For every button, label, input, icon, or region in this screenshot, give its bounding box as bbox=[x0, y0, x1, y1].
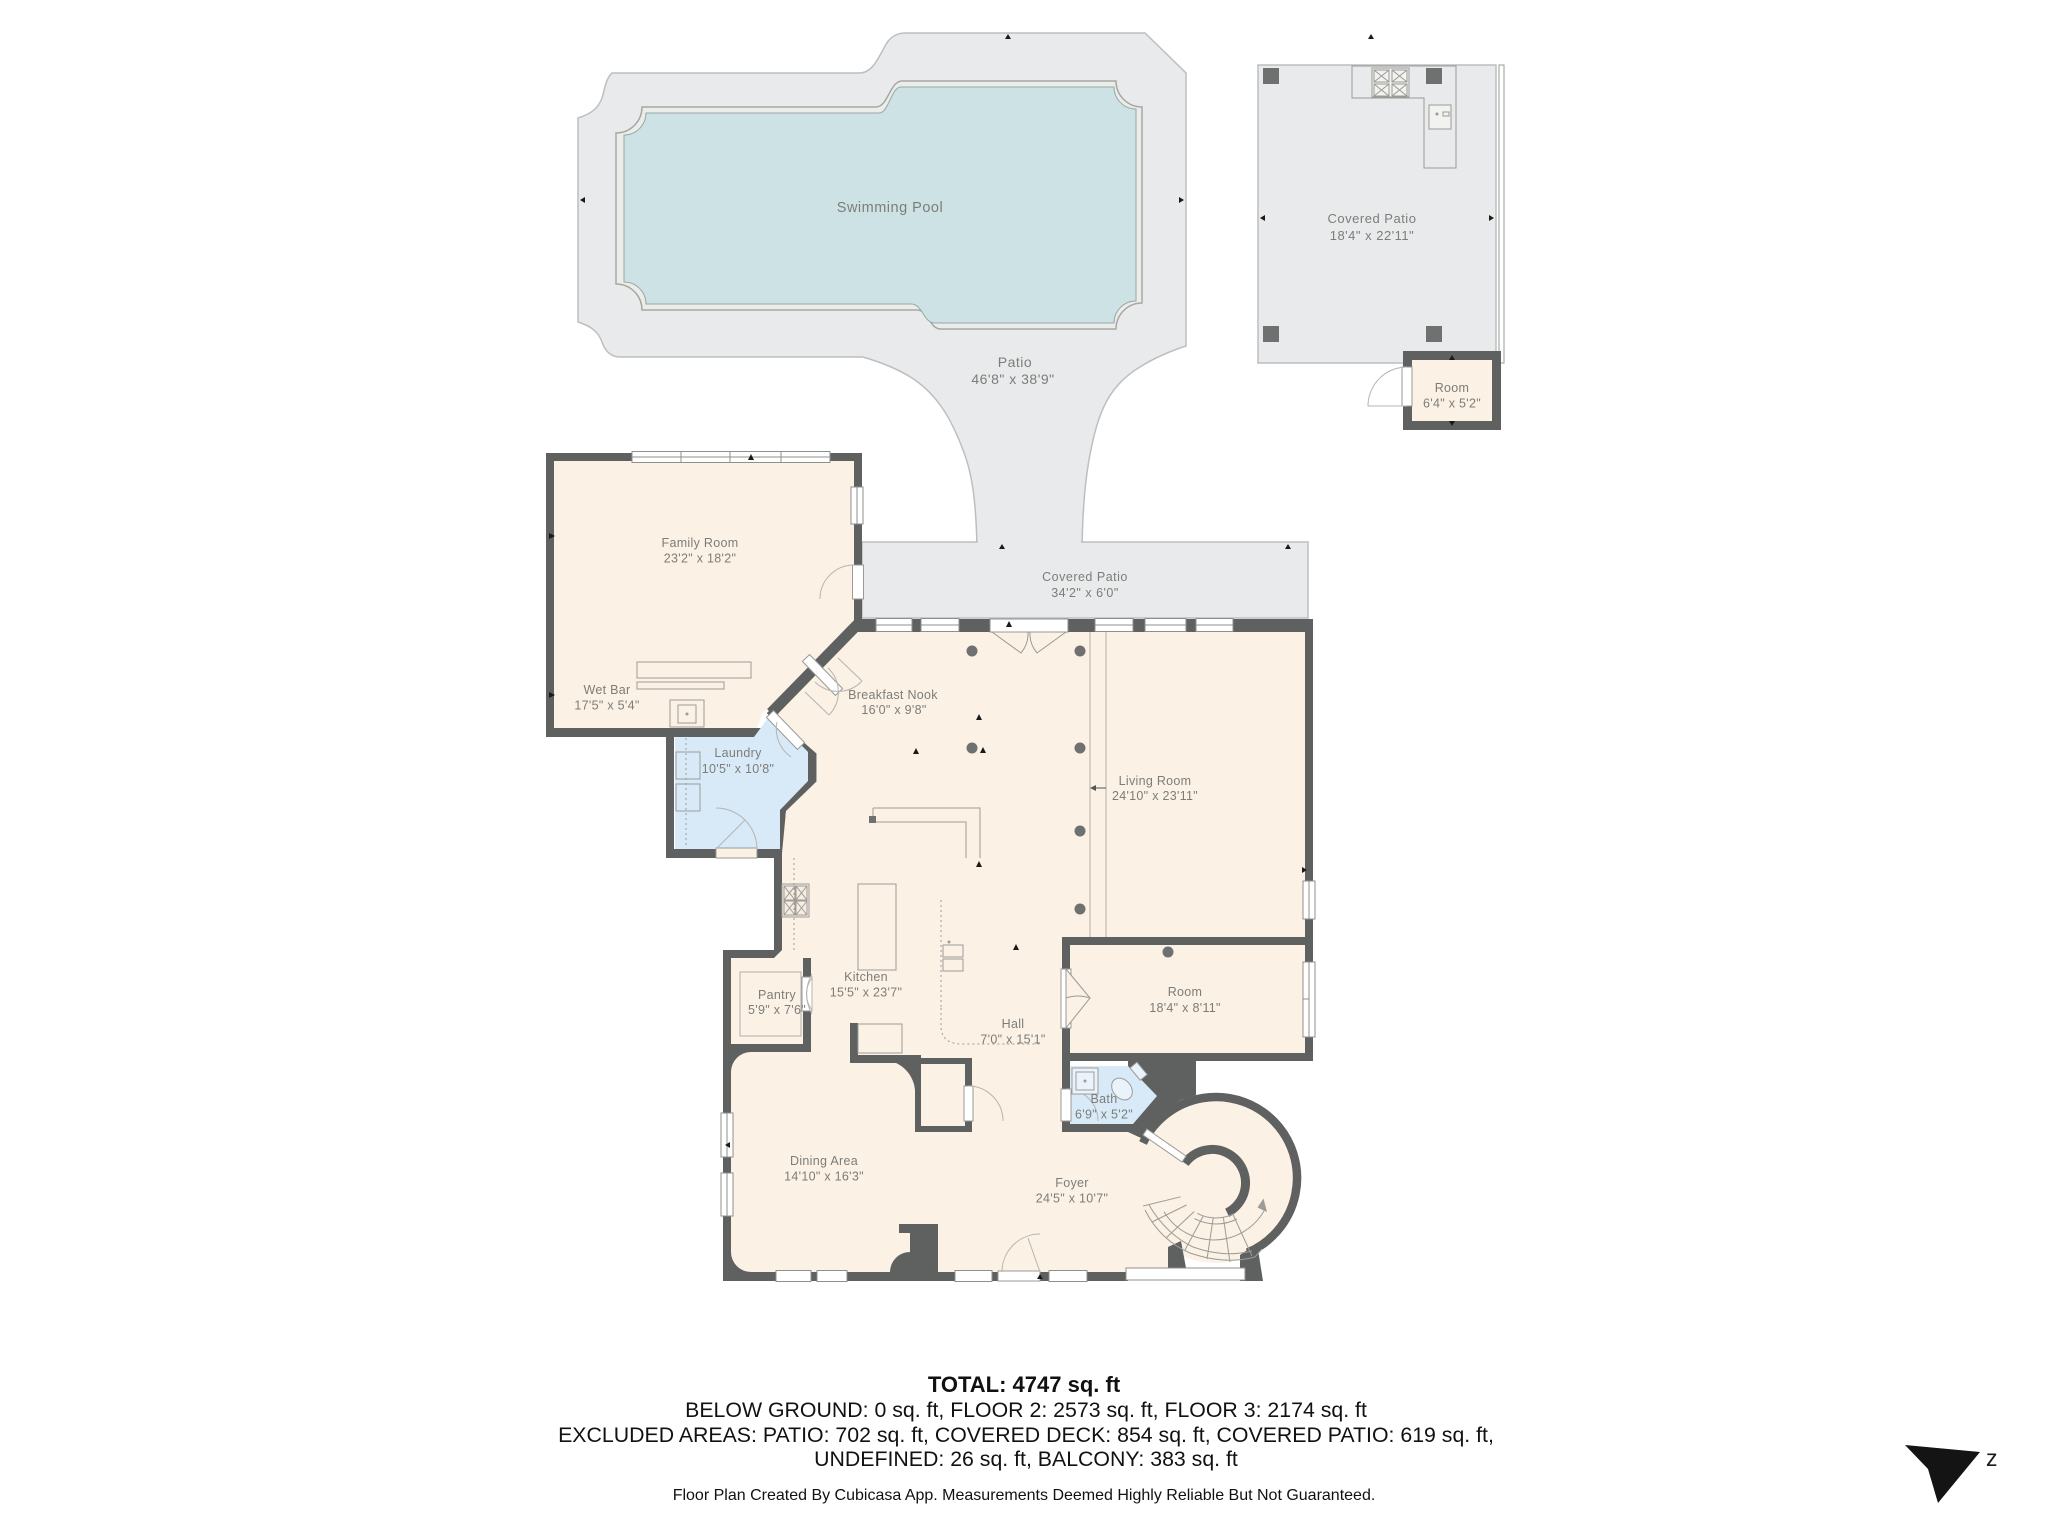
svg-text:16'0" x 9'8": 16'0" x 9'8" bbox=[861, 703, 926, 717]
svg-text:5'9" x 7'6": 5'9" x 7'6" bbox=[748, 1003, 806, 1017]
svg-text:17'5" x 5'4": 17'5" x 5'4" bbox=[574, 699, 639, 713]
svg-text:Foyer: Foyer bbox=[1055, 1176, 1088, 1190]
svg-text:Pantry: Pantry bbox=[758, 988, 796, 1002]
svg-text:Covered Patio: Covered Patio bbox=[1328, 211, 1417, 226]
svg-text:6'9" x 5'2": 6'9" x 5'2" bbox=[1075, 1108, 1133, 1122]
svg-text:Bath: Bath bbox=[1091, 1092, 1118, 1106]
svg-text:23'2" x 18'2": 23'2" x 18'2" bbox=[664, 552, 736, 566]
svg-text:BELOW GROUND: 0 sq. ft, FLOOR: BELOW GROUND: 0 sq. ft, FLOOR 2: 2573 sq… bbox=[685, 1398, 1367, 1422]
svg-text:15'5" x 23'7": 15'5" x 23'7" bbox=[830, 986, 902, 1000]
svg-text:z: z bbox=[1986, 1445, 1998, 1471]
svg-text:Patio: Patio bbox=[998, 354, 1032, 370]
svg-text:TOTAL: 4747 sq. ft: TOTAL: 4747 sq. ft bbox=[928, 1372, 1121, 1397]
svg-text:Hall: Hall bbox=[1002, 1017, 1025, 1031]
svg-text:24'5" x 10'7": 24'5" x 10'7" bbox=[1036, 1192, 1108, 1206]
svg-text:18'4" x 8'11": 18'4" x 8'11" bbox=[1149, 1001, 1221, 1015]
svg-text:UNDEFINED: 26 sq. ft, BALCONY:: UNDEFINED: 26 sq. ft, BALCONY: 383 sq. f… bbox=[814, 1447, 1238, 1471]
svg-text:EXCLUDED AREAS: PATIO: 702 sq.: EXCLUDED AREAS: PATIO: 702 sq. ft, COVER… bbox=[558, 1423, 1494, 1447]
svg-text:Family Room: Family Room bbox=[662, 536, 739, 550]
svg-text:Living Room: Living Room bbox=[1119, 774, 1192, 788]
svg-text:Laundry: Laundry bbox=[714, 746, 762, 760]
svg-text:6'4" x 5'2": 6'4" x 5'2" bbox=[1423, 397, 1481, 411]
svg-text:46'8" x 38'9": 46'8" x 38'9" bbox=[971, 371, 1054, 387]
svg-text:Dining Area: Dining Area bbox=[790, 1154, 858, 1168]
svg-text:Covered Patio: Covered Patio bbox=[1042, 570, 1128, 584]
svg-text:7'0" x 15'1": 7'0" x 15'1" bbox=[980, 1033, 1045, 1047]
svg-text:Floor Plan Created By Cubicasa: Floor Plan Created By Cubicasa App. Meas… bbox=[673, 1487, 1376, 1504]
svg-text:34'2" x 6'0": 34'2" x 6'0" bbox=[1051, 586, 1119, 600]
svg-text:Kitchen: Kitchen bbox=[844, 970, 888, 984]
svg-text:Room: Room bbox=[1168, 985, 1203, 999]
svg-text:10'5" x 10'8": 10'5" x 10'8" bbox=[702, 762, 774, 776]
svg-text:Room: Room bbox=[1435, 381, 1470, 395]
svg-text:18'4" x 22'11": 18'4" x 22'11" bbox=[1330, 228, 1415, 243]
svg-text:Wet Bar: Wet Bar bbox=[583, 683, 630, 697]
svg-text:14'10" x 16'3": 14'10" x 16'3" bbox=[784, 1170, 864, 1184]
svg-text:Breakfast Nook: Breakfast Nook bbox=[848, 688, 938, 702]
svg-text:24'10" x 23'11": 24'10" x 23'11" bbox=[1112, 789, 1198, 803]
svg-text:Swimming Pool: Swimming Pool bbox=[837, 200, 943, 216]
